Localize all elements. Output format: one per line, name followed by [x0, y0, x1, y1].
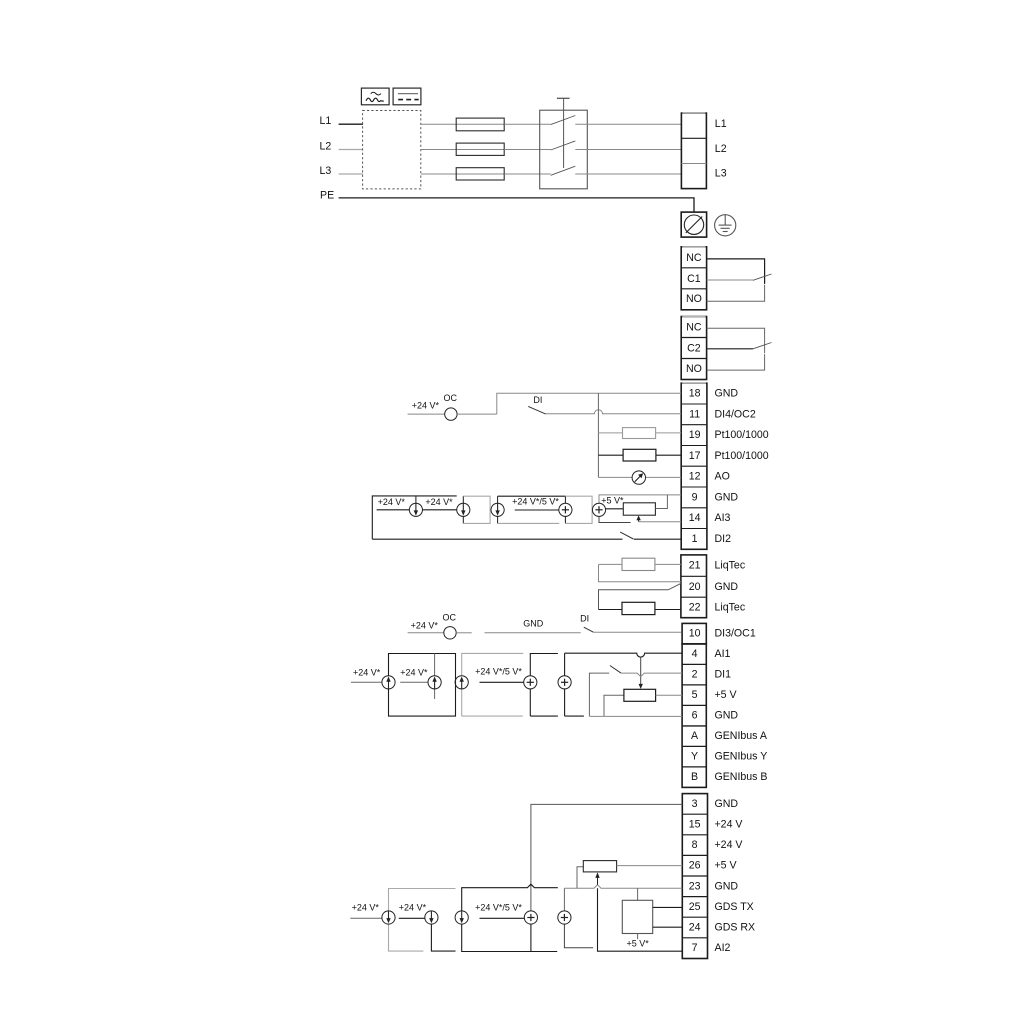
svg-text:+24 V*: +24 V* — [378, 497, 406, 507]
svg-text:4: 4 — [692, 648, 698, 660]
svg-text:+5 V*: +5 V* — [601, 495, 624, 505]
svg-text:L1: L1 — [320, 115, 332, 127]
svg-text:15: 15 — [689, 819, 701, 831]
svg-text:AI2: AI2 — [715, 942, 731, 954]
svg-text:+24 V*/5 V*: +24 V*/5 V* — [512, 497, 559, 507]
svg-text:+5 V: +5 V — [715, 689, 738, 701]
svg-text:L2: L2 — [715, 143, 727, 155]
svg-text:LiqTec: LiqTec — [715, 602, 746, 614]
svg-text:10: 10 — [689, 628, 701, 640]
svg-text:NO: NO — [686, 363, 702, 375]
svg-text:NC: NC — [686, 252, 702, 264]
svg-text:9: 9 — [692, 491, 698, 503]
svg-text:23: 23 — [689, 880, 701, 892]
svg-text:NC: NC — [686, 322, 702, 334]
svg-text:+24 V: +24 V — [715, 839, 744, 851]
svg-text:L3: L3 — [715, 167, 727, 179]
svg-text:Pt100/1000: Pt100/1000 — [715, 450, 769, 462]
svg-text:22: 22 — [689, 602, 701, 614]
svg-text:DI: DI — [533, 395, 542, 405]
svg-text:17: 17 — [689, 450, 701, 462]
svg-text:GND: GND — [715, 491, 739, 503]
svg-text:B: B — [691, 771, 698, 783]
svg-text:DI3/OC1: DI3/OC1 — [715, 628, 756, 640]
svg-text:+24 V*: +24 V* — [353, 667, 381, 677]
svg-text:19: 19 — [689, 429, 701, 441]
svg-text:GND: GND — [523, 618, 544, 628]
svg-text:GDS TX: GDS TX — [715, 901, 754, 913]
svg-text:Pt100/1000: Pt100/1000 — [715, 429, 769, 441]
svg-text:L1: L1 — [715, 118, 727, 130]
svg-text:GND: GND — [715, 388, 739, 400]
svg-text:DI2: DI2 — [715, 533, 732, 545]
svg-text:25: 25 — [689, 901, 701, 913]
svg-text:GENIbus Y: GENIbus Y — [715, 751, 768, 763]
svg-text:A: A — [691, 730, 699, 742]
svg-text:+24 V: +24 V — [715, 819, 744, 831]
svg-text:C1: C1 — [687, 273, 701, 285]
svg-text:NO: NO — [686, 293, 702, 305]
svg-text:18: 18 — [689, 388, 701, 400]
svg-text:AO: AO — [715, 471, 730, 483]
svg-text:AI1: AI1 — [715, 648, 731, 660]
svg-text:DI1: DI1 — [715, 669, 732, 681]
svg-text:GND: GND — [715, 581, 739, 593]
svg-text:Y: Y — [691, 751, 698, 763]
svg-text:2: 2 — [692, 669, 698, 681]
svg-text:DI: DI — [580, 614, 589, 624]
svg-text:+24 V*: +24 V* — [411, 621, 439, 631]
svg-text:GENIbus B: GENIbus B — [715, 771, 768, 783]
svg-text:GND: GND — [715, 710, 739, 722]
svg-text:GND: GND — [715, 880, 739, 892]
svg-text:20: 20 — [689, 581, 701, 593]
svg-text:+24 V*: +24 V* — [352, 903, 380, 913]
svg-text:AI3: AI3 — [715, 512, 731, 524]
svg-text:GENIbus A: GENIbus A — [715, 730, 768, 742]
svg-text:L2: L2 — [320, 141, 332, 153]
svg-text:PE: PE — [320, 190, 334, 202]
svg-text:GND: GND — [715, 798, 739, 810]
svg-text:+24 V*/5 V*: +24 V*/5 V* — [475, 902, 522, 912]
svg-text:+24 V*/5 V*: +24 V*/5 V* — [475, 667, 522, 677]
svg-text:5: 5 — [692, 689, 698, 701]
svg-text:+5 V*: +5 V* — [627, 938, 650, 948]
svg-text:24: 24 — [689, 922, 701, 934]
svg-text:+5 V: +5 V — [715, 860, 738, 872]
svg-text:26: 26 — [689, 860, 701, 872]
svg-text:C2: C2 — [687, 343, 701, 355]
svg-text:1: 1 — [692, 533, 698, 545]
svg-text:3: 3 — [692, 798, 698, 810]
svg-text:6: 6 — [692, 710, 698, 722]
svg-text:7: 7 — [692, 942, 698, 954]
svg-text:8: 8 — [692, 839, 698, 851]
svg-text:12: 12 — [689, 471, 701, 483]
svg-text:+24 V*: +24 V* — [425, 497, 453, 507]
svg-text:OC: OC — [443, 613, 457, 623]
svg-text:+24 V*: +24 V* — [399, 903, 427, 913]
svg-text:14: 14 — [689, 512, 701, 524]
svg-text:+24 V*: +24 V* — [412, 401, 440, 411]
svg-text:DI4/OC2: DI4/OC2 — [715, 408, 756, 420]
svg-text:OC: OC — [444, 393, 458, 403]
svg-text:L3: L3 — [320, 165, 332, 177]
svg-text:GDS RX: GDS RX — [715, 922, 756, 934]
svg-text:11: 11 — [689, 408, 700, 420]
svg-text:LiqTec: LiqTec — [715, 560, 746, 572]
svg-text:21: 21 — [689, 560, 701, 572]
svg-text:+24 V*: +24 V* — [400, 667, 428, 677]
